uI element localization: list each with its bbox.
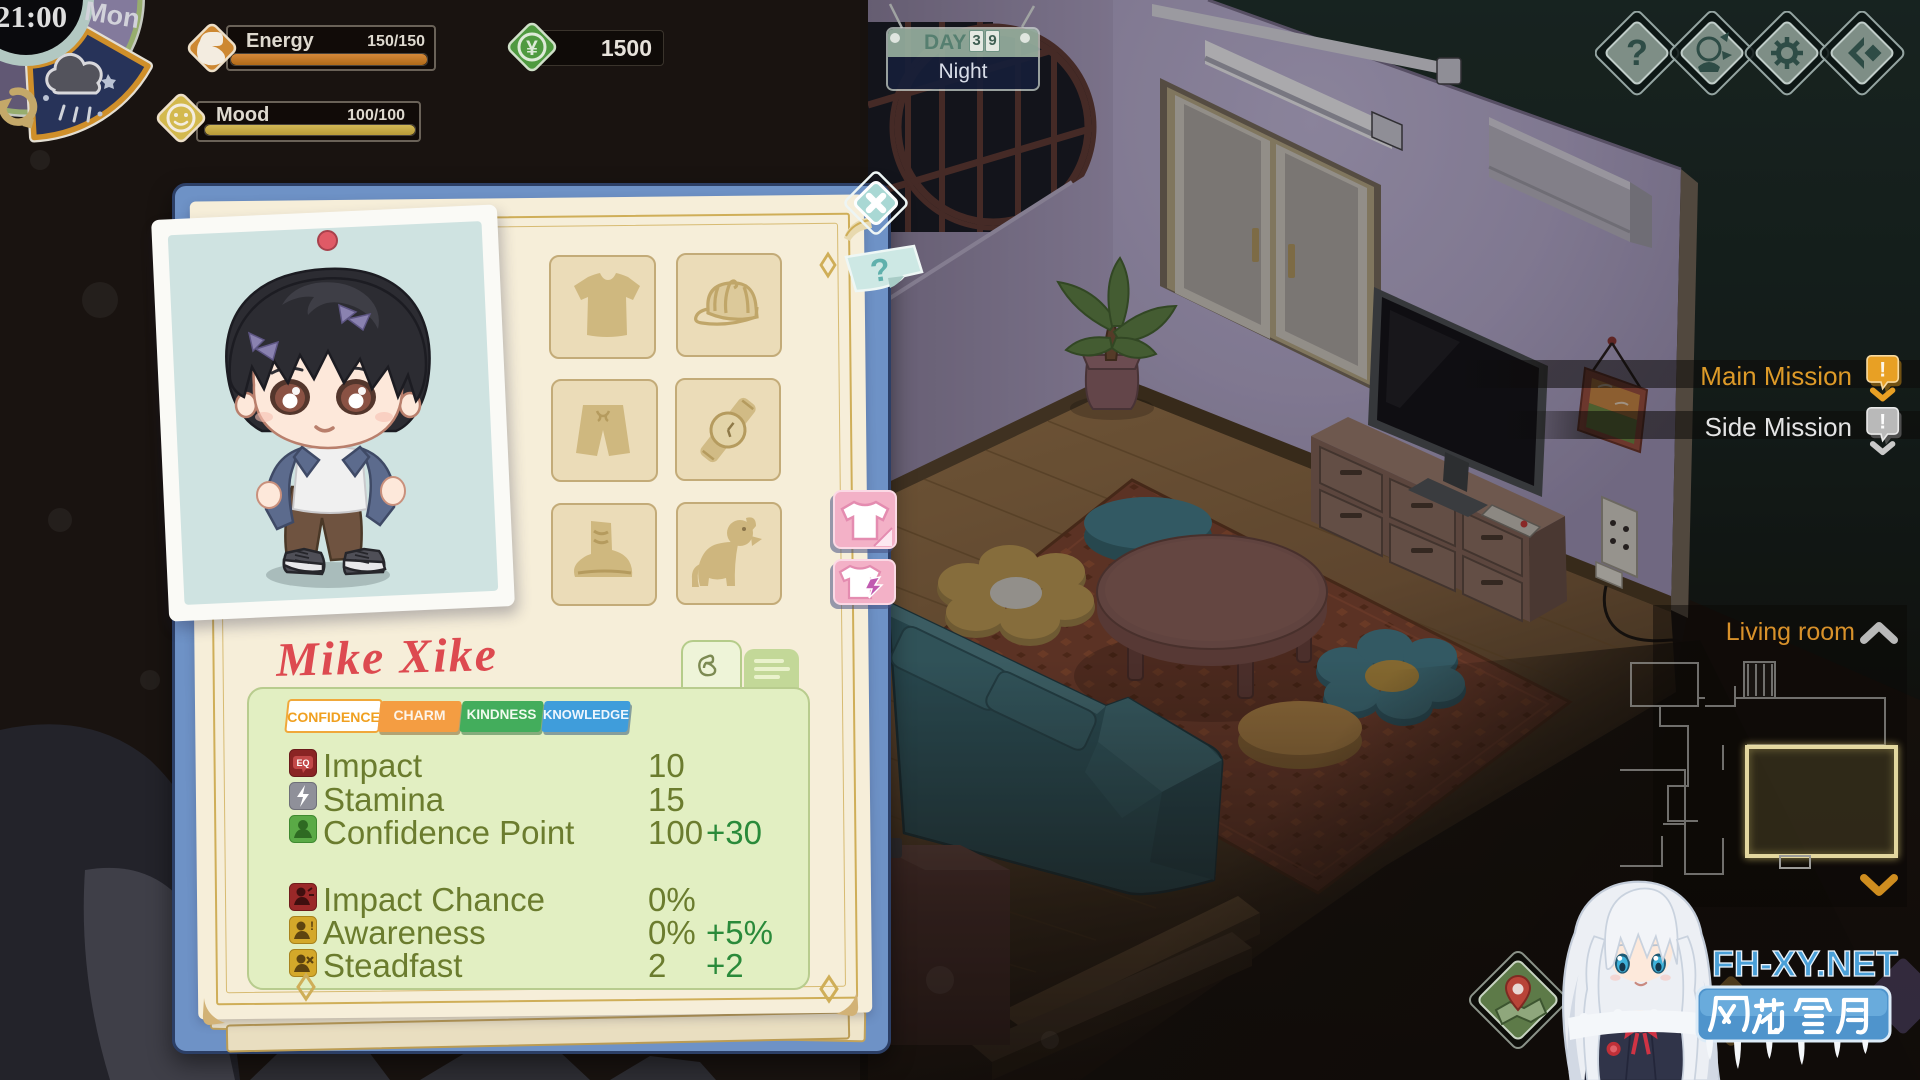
svg-text:21:00: 21:00 [0,0,67,34]
svg-text:!: ! [1879,409,1886,433]
svg-text:EQ: EQ [296,758,309,768]
svg-text:¥: ¥ [526,37,538,60]
svg-text:!: ! [1879,357,1886,381]
svg-text:!: ! [310,919,314,933]
svg-text:FH-XY.NET: FH-XY.NET [1712,943,1898,984]
svg-text:?: ? [1626,32,1648,73]
